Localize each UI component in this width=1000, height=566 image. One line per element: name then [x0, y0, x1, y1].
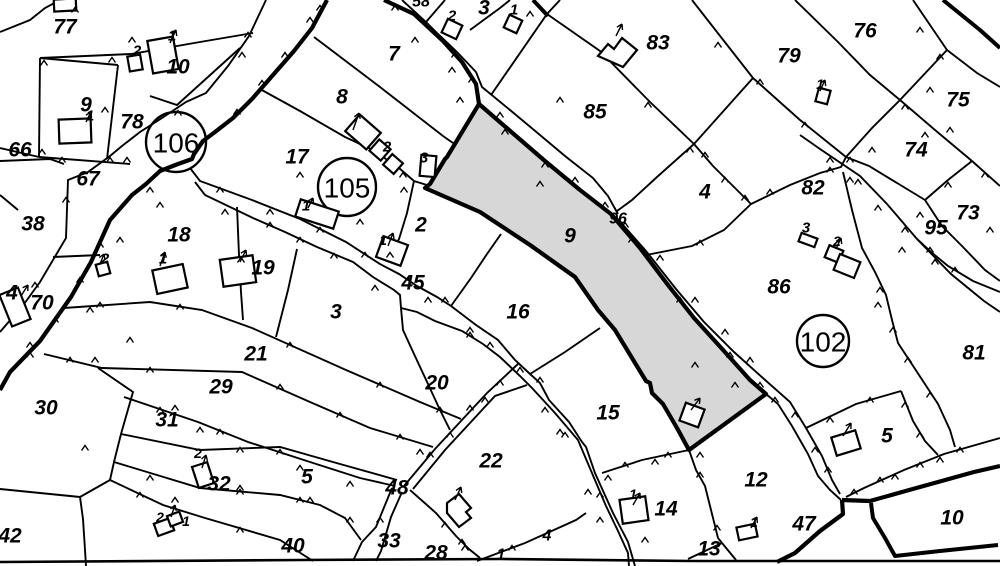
- svg-text:79: 79: [777, 45, 801, 68]
- svg-text:21: 21: [243, 343, 267, 366]
- svg-text:7: 7: [388, 43, 401, 66]
- svg-text:106: 106: [153, 128, 200, 159]
- svg-text:8: 8: [336, 86, 348, 109]
- svg-text:73: 73: [956, 202, 980, 225]
- svg-text:78: 78: [120, 111, 144, 134]
- svg-text:38: 38: [21, 213, 45, 236]
- svg-text:28: 28: [423, 542, 448, 565]
- svg-text:66: 66: [8, 139, 32, 162]
- svg-text:48: 48: [384, 477, 409, 500]
- svg-text:1: 1: [168, 28, 176, 45]
- svg-text:32: 32: [207, 473, 231, 496]
- svg-text:20: 20: [424, 372, 449, 395]
- svg-text:77: 77: [53, 16, 78, 39]
- svg-text:4: 4: [542, 528, 552, 545]
- svg-text:33: 33: [377, 530, 401, 553]
- svg-text:42: 42: [0, 525, 22, 548]
- svg-text:13: 13: [697, 538, 721, 561]
- svg-text:47: 47: [791, 513, 817, 536]
- svg-text:83: 83: [646, 32, 670, 55]
- svg-text:4: 4: [5, 282, 18, 305]
- svg-text:1: 1: [302, 198, 310, 215]
- svg-text:2: 2: [155, 509, 164, 525]
- svg-text:1: 1: [379, 232, 387, 248]
- svg-text:22: 22: [478, 450, 503, 473]
- svg-text:40: 40: [280, 535, 305, 558]
- svg-text:3: 3: [802, 220, 811, 237]
- svg-text:1: 1: [159, 251, 167, 268]
- svg-text:2: 2: [447, 8, 457, 25]
- svg-text:82: 82: [801, 177, 825, 200]
- svg-text:1: 1: [86, 108, 94, 125]
- svg-text:2: 2: [832, 233, 841, 249]
- svg-text:1: 1: [510, 2, 518, 19]
- svg-text:75: 75: [946, 89, 970, 112]
- svg-text:15: 15: [596, 402, 620, 425]
- svg-text:85: 85: [583, 101, 607, 124]
- svg-text:1: 1: [182, 513, 190, 529]
- svg-text:105: 105: [324, 173, 371, 204]
- svg-text:2: 2: [414, 214, 427, 237]
- svg-text:2: 2: [193, 445, 202, 461]
- svg-text:1: 1: [750, 514, 758, 530]
- svg-text:18: 18: [167, 224, 191, 247]
- svg-text:96: 96: [609, 211, 627, 228]
- svg-text:74: 74: [904, 139, 928, 162]
- svg-text:1: 1: [497, 547, 506, 564]
- svg-text:29: 29: [208, 376, 233, 399]
- svg-text:12: 12: [744, 469, 768, 492]
- svg-text:67: 67: [76, 168, 101, 191]
- svg-text:17: 17: [285, 146, 310, 169]
- svg-text:30: 30: [34, 397, 58, 420]
- svg-text:14: 14: [654, 498, 678, 521]
- svg-text:2: 2: [100, 251, 110, 268]
- svg-text:9: 9: [564, 225, 576, 248]
- svg-text:76: 76: [853, 20, 877, 43]
- svg-text:10: 10: [166, 56, 190, 79]
- svg-text:3: 3: [420, 150, 429, 167]
- svg-text:58: 58: [412, 0, 430, 11]
- svg-text:5: 5: [301, 466, 313, 489]
- svg-text:3: 3: [478, 0, 490, 20]
- svg-text:2: 2: [382, 139, 392, 156]
- svg-text:86: 86: [767, 276, 791, 299]
- svg-text:5: 5: [881, 425, 893, 448]
- svg-text:102: 102: [800, 327, 847, 358]
- svg-text:10: 10: [940, 507, 964, 530]
- svg-text:45: 45: [400, 272, 425, 295]
- svg-text:3: 3: [330, 301, 342, 324]
- svg-text:2: 2: [132, 43, 142, 60]
- svg-text:95: 95: [924, 217, 948, 240]
- svg-text:4: 4: [698, 181, 711, 204]
- svg-text:1: 1: [629, 486, 637, 502]
- svg-text:81: 81: [962, 342, 985, 365]
- svg-text:1: 1: [816, 76, 824, 92]
- svg-text:31: 31: [155, 409, 178, 432]
- svg-text:70: 70: [30, 292, 54, 315]
- svg-text:19: 19: [251, 257, 275, 280]
- svg-text:16: 16: [506, 301, 530, 324]
